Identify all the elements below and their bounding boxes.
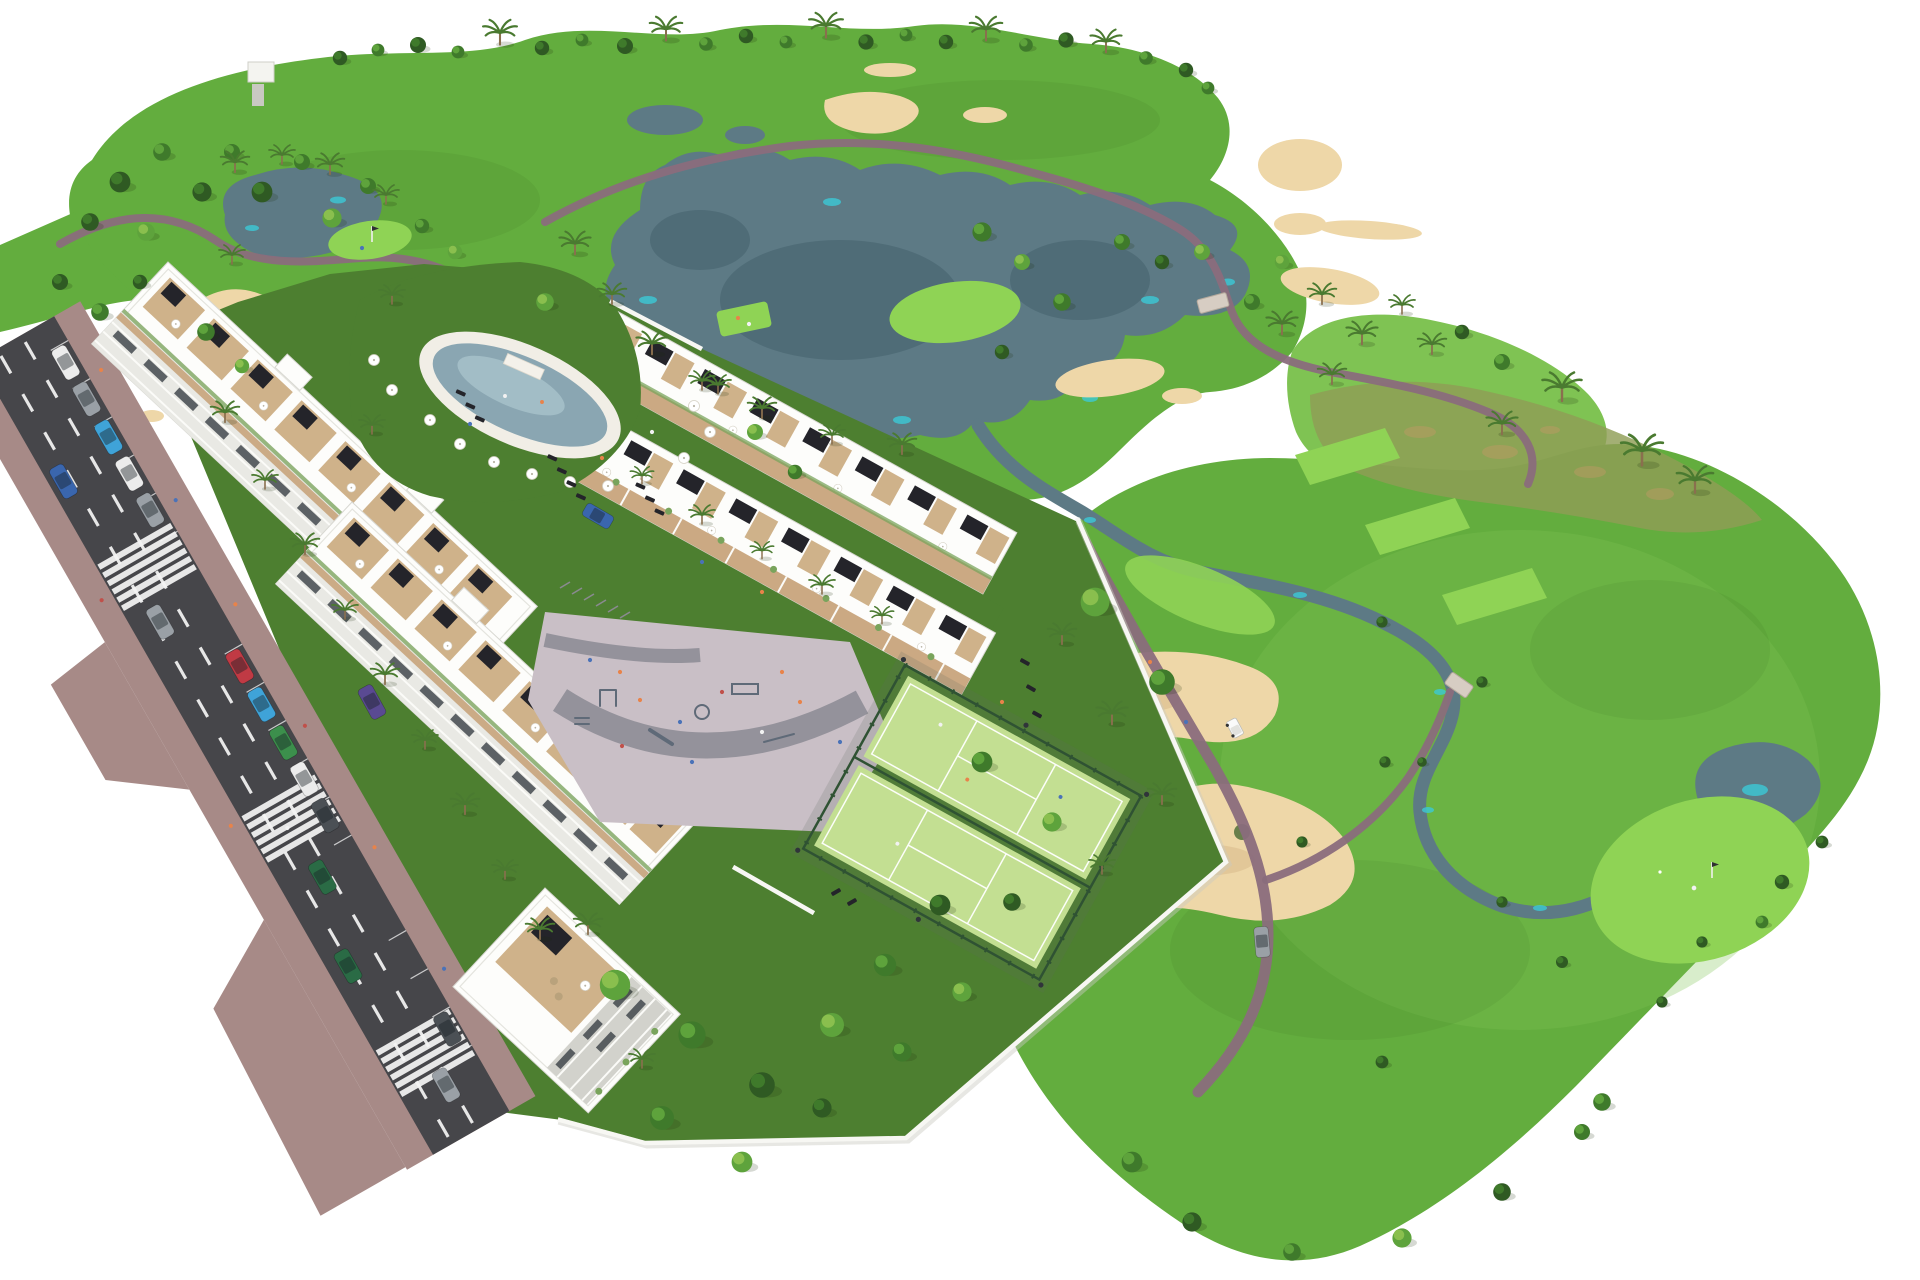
golf-resort-render (0, 0, 1920, 1280)
swimmer (503, 394, 507, 398)
swimmer (540, 400, 544, 404)
golfer (360, 246, 364, 250)
car-on-service-path (1253, 926, 1270, 958)
golf-ball (1658, 870, 1661, 873)
top-pond (627, 105, 703, 135)
golfer (747, 322, 751, 326)
aerial-render-canvas (0, 0, 1920, 1280)
golfer (736, 316, 740, 320)
golfer (1692, 886, 1697, 891)
